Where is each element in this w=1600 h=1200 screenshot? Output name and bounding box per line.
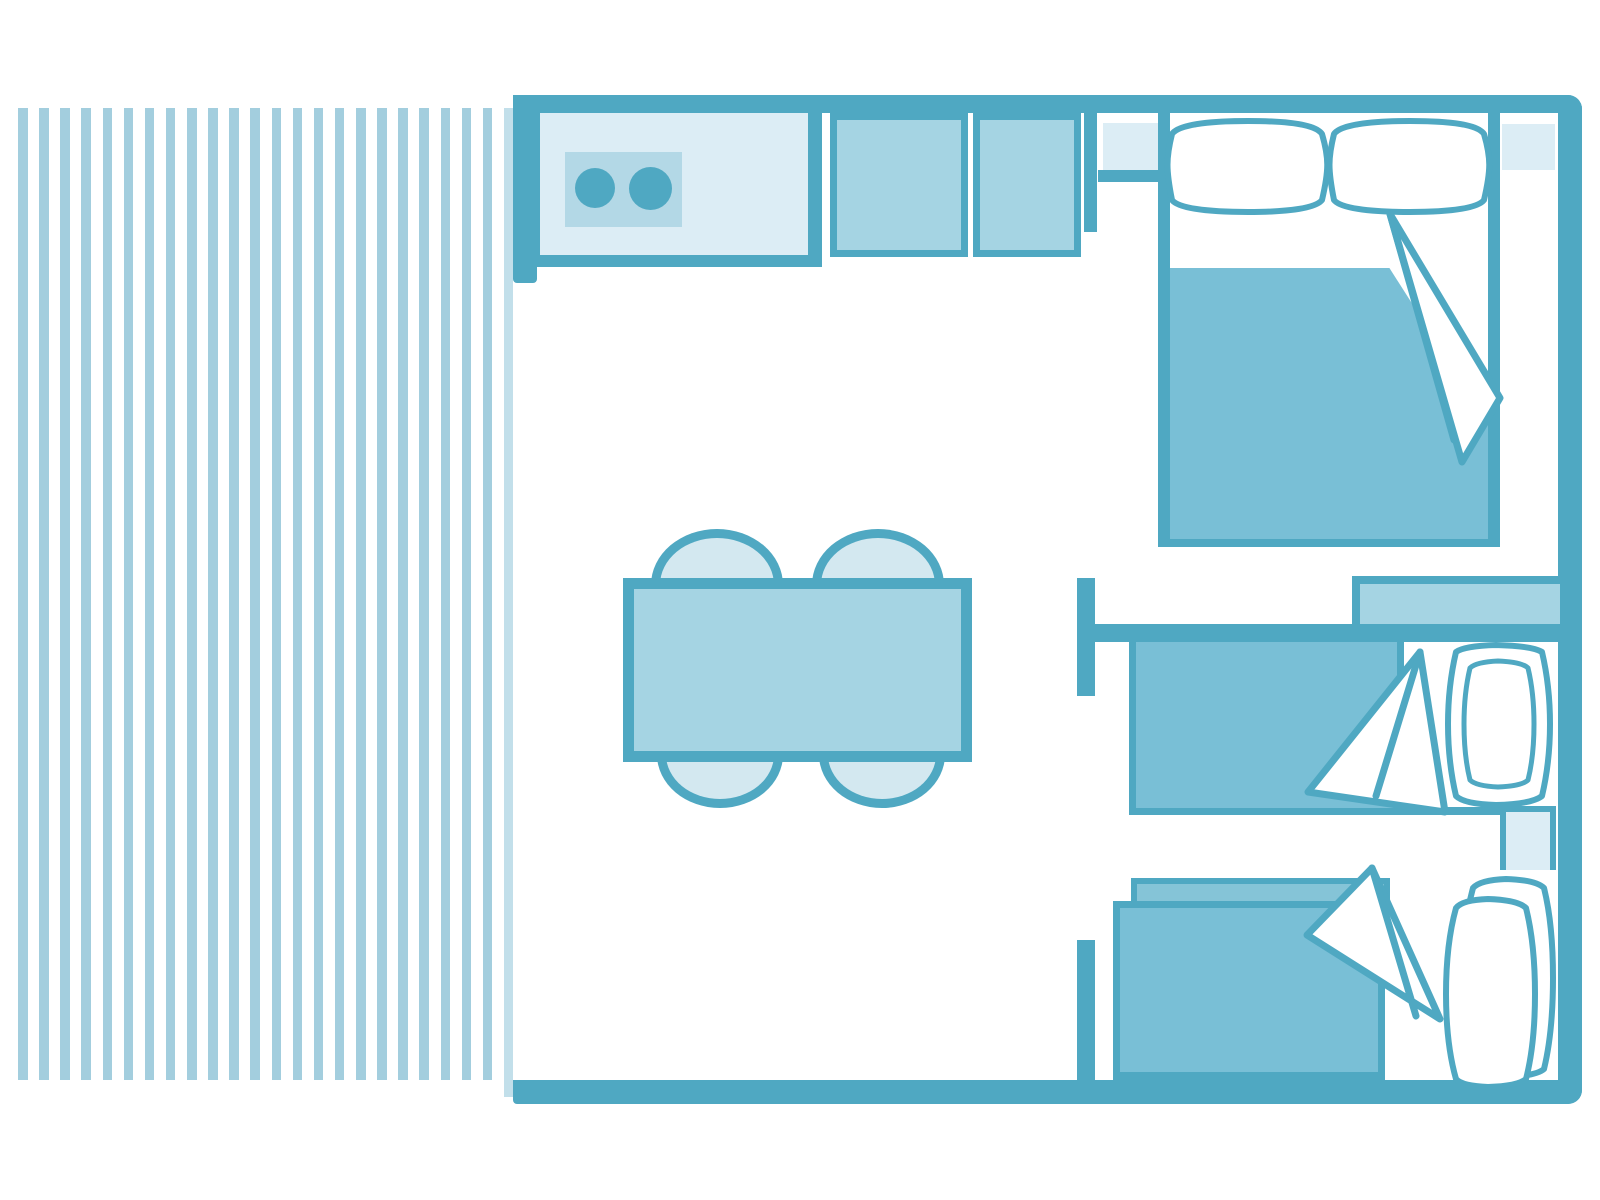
single-bed-2-pillow (1440, 874, 1558, 1090)
bedside-table-middle-fill (1506, 812, 1550, 870)
deck-stripe (462, 108, 472, 1080)
burner-left-icon (575, 168, 615, 208)
deck-terrace (0, 0, 520, 1200)
deck-stripe (293, 108, 303, 1080)
floor-plan-canvas (0, 0, 1600, 1200)
wall-jamb-bedroom-entry (1084, 113, 1097, 232)
cabinet-2-fill (980, 120, 1074, 250)
deck-stripe (398, 108, 408, 1080)
deck-stripe (314, 108, 324, 1080)
deck-stripe (419, 108, 429, 1080)
deck-stripe (187, 108, 197, 1080)
deck-stripe (335, 108, 345, 1080)
deck-stripe (18, 108, 28, 1080)
pillow-icon (1168, 121, 1328, 212)
deck-stripe (166, 108, 176, 1080)
outer-wall-right (1558, 95, 1582, 1104)
outer-wall-bottom (513, 1080, 1582, 1104)
storage-shelf (1360, 584, 1560, 624)
deck-stripe (145, 108, 155, 1080)
bedside-shelf-left (1103, 123, 1160, 170)
double-bed-sheet-fold (1378, 202, 1510, 472)
deck-stripe (272, 108, 282, 1080)
door-jamb-upper (1077, 578, 1095, 696)
kitchen-wall-stub (513, 265, 537, 283)
deck-stripe (208, 108, 218, 1080)
door-jamb-lower (1077, 940, 1095, 1104)
pillow-icon (1330, 121, 1490, 212)
cabinet-1-fill (837, 120, 961, 250)
single-bed-2-sheet-fold (1298, 858, 1450, 1028)
dining-table (623, 578, 972, 762)
deck-stripe (250, 108, 260, 1080)
pillow-inner-line (1464, 661, 1534, 787)
burner-right-icon (629, 167, 672, 210)
deck-stripe (124, 108, 134, 1080)
deck-stripe (103, 108, 113, 1080)
deck-stripe (229, 108, 239, 1080)
pillow-icon (1446, 899, 1535, 1087)
deck-stripe (377, 108, 387, 1080)
single-bed-1-pillow (1440, 638, 1558, 810)
deck-stripe (483, 108, 493, 1080)
deck-stripe (81, 108, 91, 1080)
window-shelf-right (1502, 124, 1555, 170)
single-bed-1-sheet-fold (1300, 640, 1456, 822)
bedside-shelf-left-base (1098, 170, 1160, 182)
deck-stripe (441, 108, 451, 1080)
deck-stripe (39, 108, 49, 1080)
deck-stripe (356, 108, 366, 1080)
deck-stripe (60, 108, 70, 1080)
